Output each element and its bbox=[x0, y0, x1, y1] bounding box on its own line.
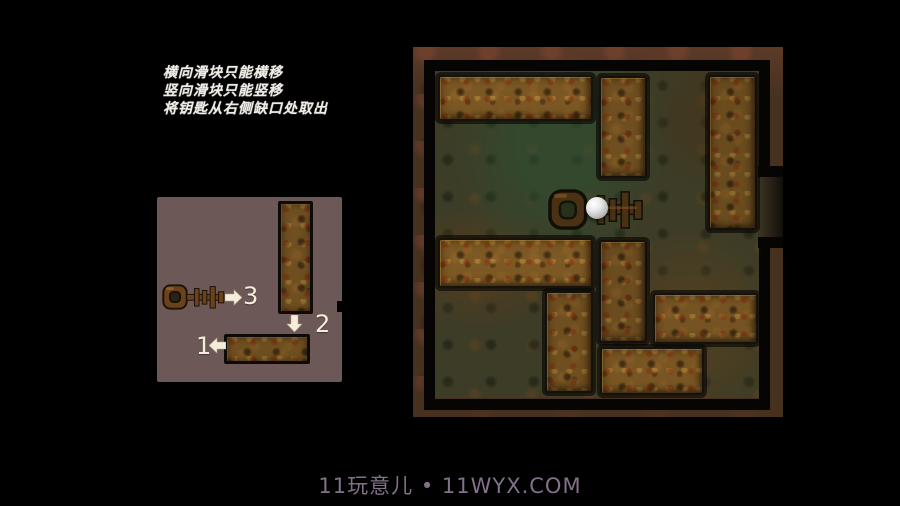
board-wall-right-lower bbox=[759, 248, 770, 410]
instruction-line-2: 竖向滑块只能竖移 bbox=[163, 82, 328, 100]
diagram-horizontal-block bbox=[224, 334, 310, 364]
board-wall-right-upper bbox=[759, 60, 770, 166]
step-1-label: 1 bbox=[196, 334, 211, 358]
puzzle-block-center-vertical[interactable] bbox=[599, 240, 647, 343]
puzzle-board bbox=[413, 47, 783, 417]
watermark: 11玩意儿 • 11WYX.COM bbox=[0, 470, 900, 500]
diagram-key-icon bbox=[162, 284, 227, 310]
diagram-vertical-block bbox=[278, 201, 313, 314]
puzzle-block-top-middle-vertical[interactable] bbox=[599, 76, 647, 178]
exit-notch-opening bbox=[758, 177, 783, 237]
game-screen: 横向滑块只能横移 竖向滑块只能竖移 将钥匙从右侧缺口处取出 3 2 1 bbox=[0, 0, 900, 506]
board-wall-left bbox=[424, 60, 435, 410]
puzzle-block-middle-left-horizontal[interactable] bbox=[438, 238, 593, 288]
cursor-ball[interactable] bbox=[586, 197, 608, 219]
step-3-label: 3 bbox=[243, 284, 258, 308]
arrow-down-icon bbox=[286, 315, 303, 332]
solution-diagram: 3 2 1 bbox=[157, 197, 342, 382]
puzzle-block-top-right-vertical[interactable] bbox=[708, 75, 757, 230]
arrow-right-icon bbox=[225, 289, 242, 306]
board-wall-bottom bbox=[424, 399, 770, 410]
step-2-label: 2 bbox=[315, 312, 330, 336]
exit-notch bbox=[758, 166, 783, 248]
exit-notch-bottom-edge bbox=[758, 237, 783, 248]
puzzle-block-center-left-vertical[interactable] bbox=[545, 291, 593, 393]
instruction-line-3: 将钥匙从右侧缺口处取出 bbox=[163, 100, 328, 118]
diagram-exit-notch bbox=[337, 301, 342, 312]
instruction-line-1: 横向滑块只能横移 bbox=[163, 64, 328, 82]
puzzle-block-bottom-center-horizontal[interactable] bbox=[600, 347, 704, 395]
board-wall-top bbox=[424, 60, 770, 71]
arrow-left-icon bbox=[209, 337, 226, 354]
instructions: 横向滑块只能横移 竖向滑块只能竖移 将钥匙从右侧缺口处取出 bbox=[163, 64, 328, 118]
exit-notch-top-edge bbox=[758, 166, 783, 177]
puzzle-block-top-left-horizontal[interactable] bbox=[438, 75, 593, 121]
puzzle-block-middle-right-horizontal[interactable] bbox=[653, 293, 758, 344]
